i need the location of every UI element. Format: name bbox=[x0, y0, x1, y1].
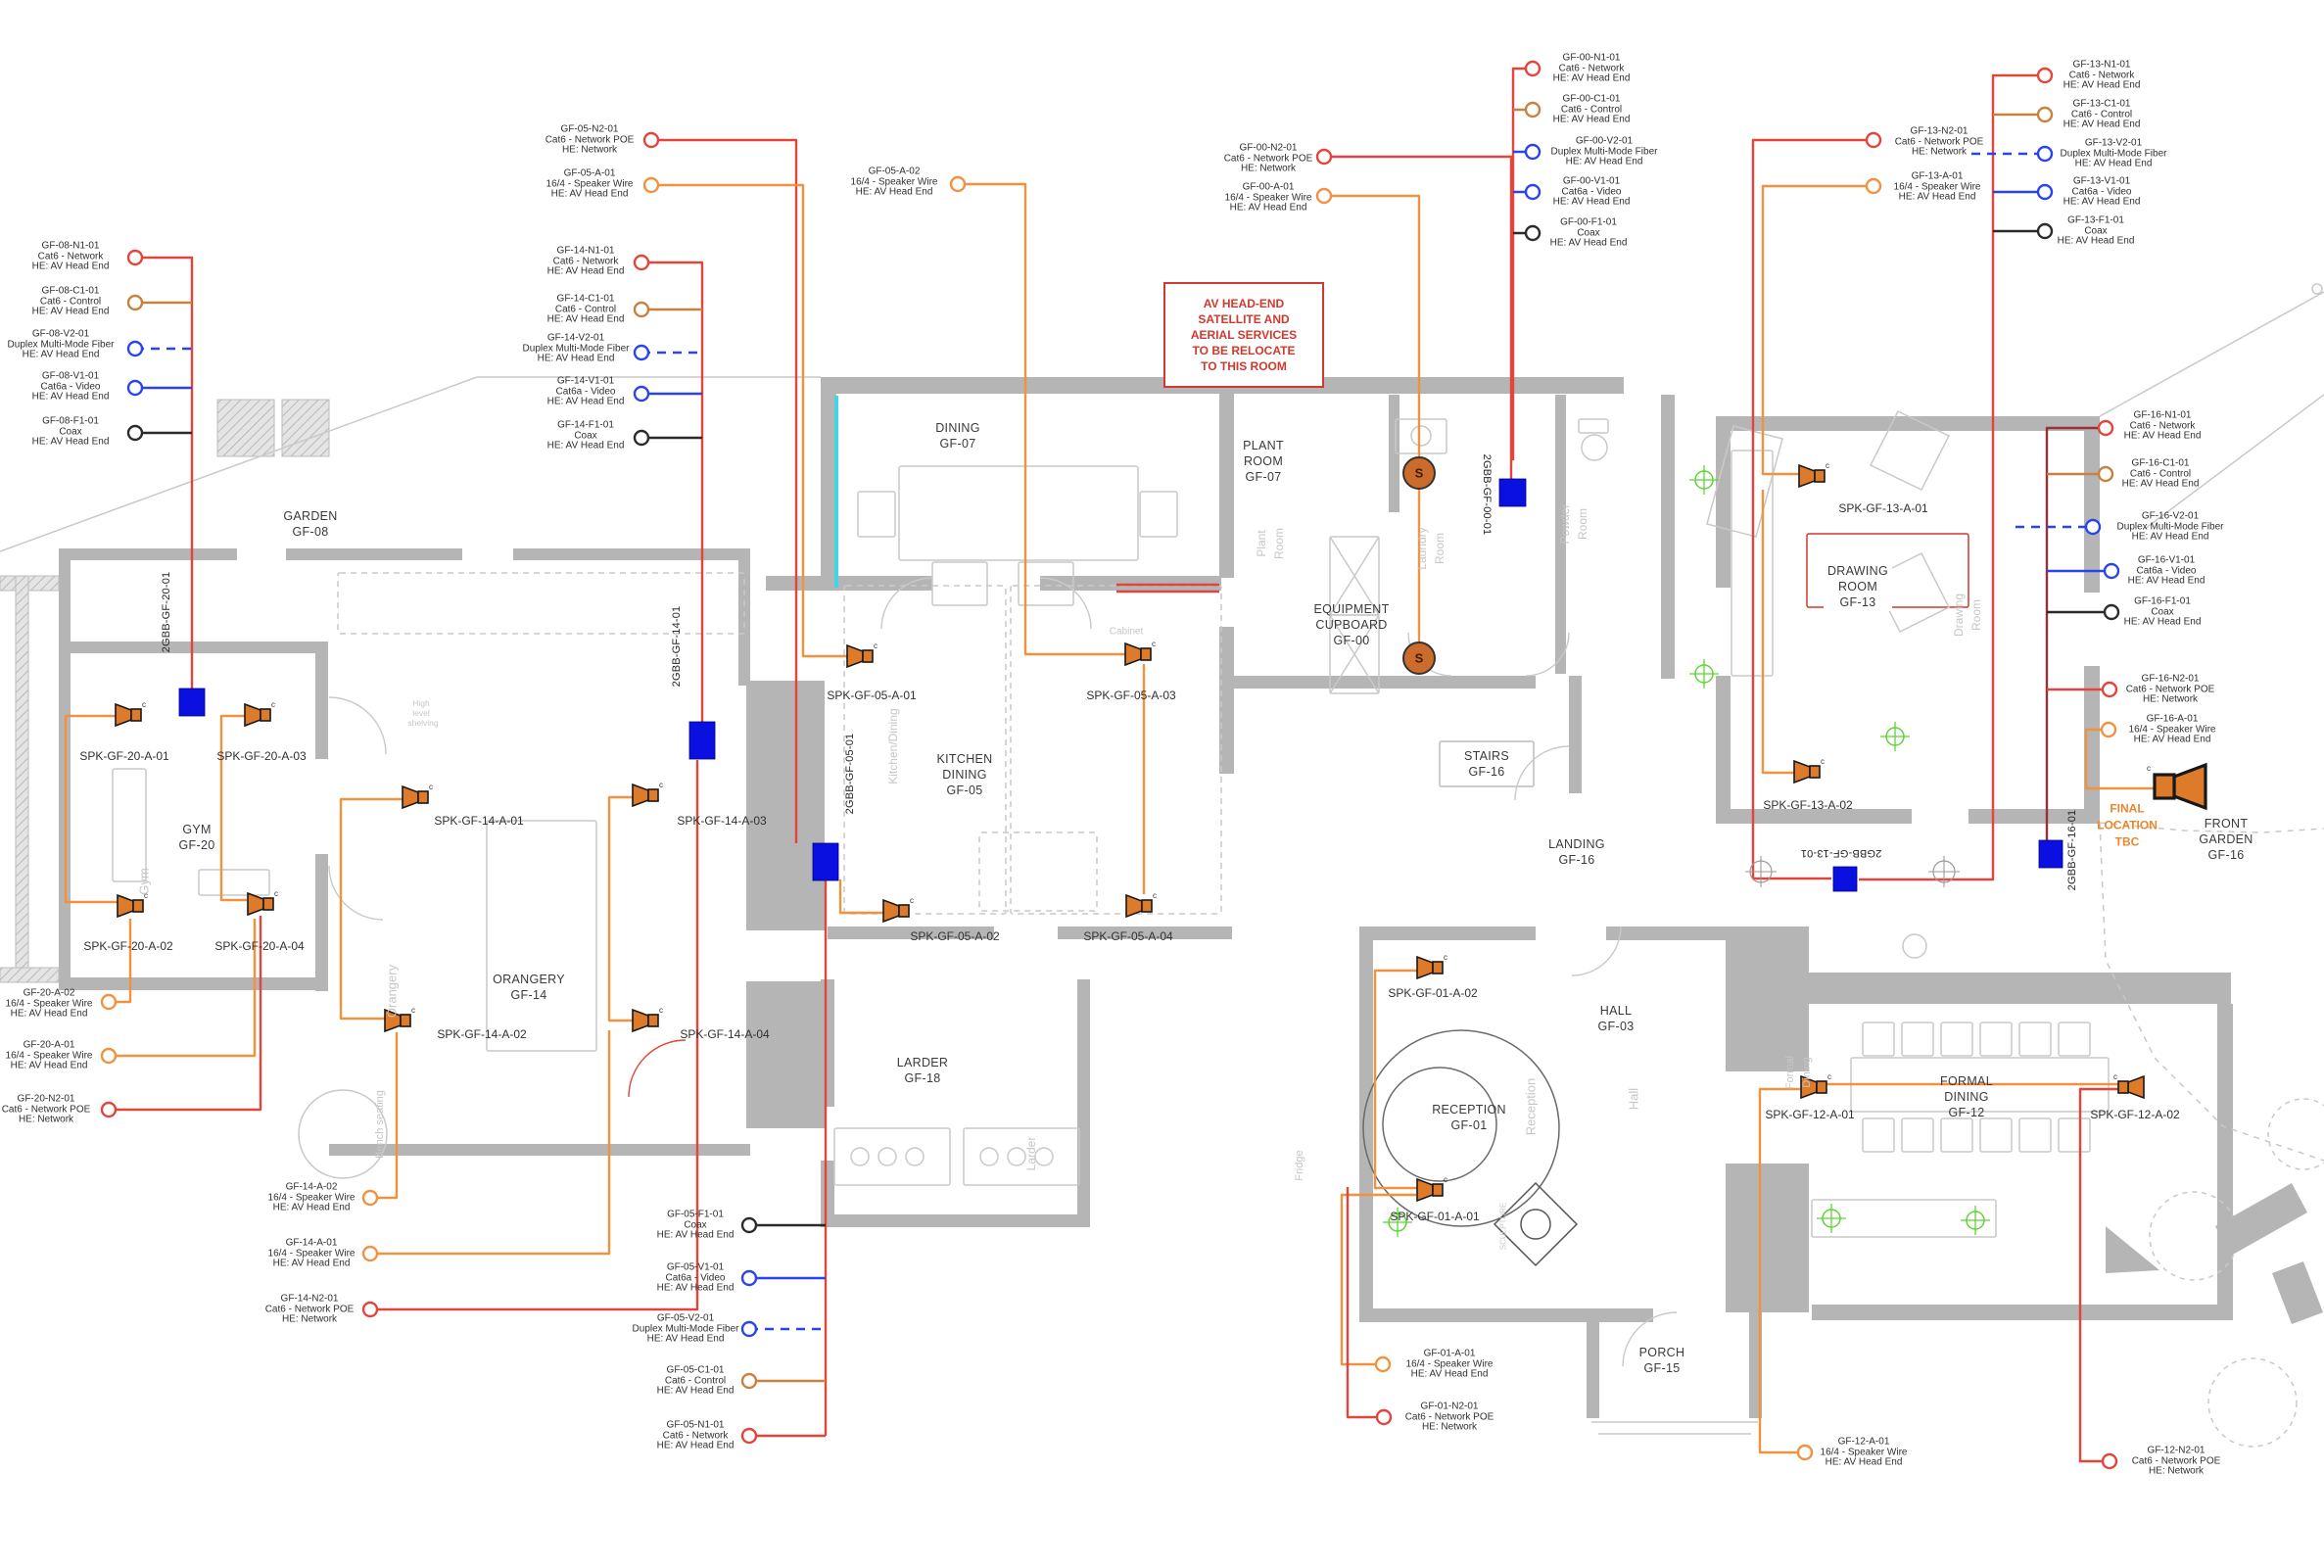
speaker-ceiling-mark: c bbox=[144, 891, 148, 900]
speaker-ceiling-mark: c bbox=[1152, 640, 1156, 648]
furniture-polygon bbox=[1873, 553, 1949, 632]
furniture-outline bbox=[487, 821, 596, 1051]
cable-terminal-dot bbox=[2105, 605, 2118, 619]
furniture-polygon bbox=[1494, 1183, 1577, 1265]
cable-terminal-dot bbox=[742, 1429, 756, 1443]
keypad-2GBB-GF-00-01 bbox=[1499, 479, 1526, 506]
furniture-circle bbox=[1383, 1068, 1496, 1181]
cable-terminal-dot bbox=[102, 995, 116, 1009]
speaker-ceiling-mark: c bbox=[1821, 757, 1825, 766]
cable-route-red bbox=[1324, 157, 1511, 479]
cable-terminal-dot bbox=[635, 256, 648, 269]
furniture-outline bbox=[113, 769, 146, 881]
speaker-cone bbox=[2174, 765, 2205, 808]
wall-segment bbox=[1716, 416, 2100, 431]
wall-segment bbox=[1716, 676, 1731, 813]
cable-terminal-dot bbox=[951, 177, 965, 191]
speaker-cone bbox=[245, 704, 261, 726]
wall-segment bbox=[821, 1214, 1090, 1227]
wall-segment bbox=[1359, 927, 1536, 940]
furniture-polygon bbox=[2272, 1261, 2323, 1324]
speaker-icon-SPK-GF-01-A-01 bbox=[1417, 1179, 1443, 1201]
speaker-driver bbox=[648, 789, 658, 801]
wall-segment bbox=[1058, 927, 1232, 939]
cable-terminal-dot bbox=[644, 178, 658, 192]
cable-terminal-dot bbox=[2099, 421, 2112, 435]
speaker-cone bbox=[1417, 1179, 1433, 1201]
s-node-letter: S bbox=[1415, 466, 1424, 481]
keypad-2GBB-GF-16-01 bbox=[2039, 840, 2063, 868]
cable-terminal-dot bbox=[2038, 147, 2052, 161]
cable-terminal-dot bbox=[2099, 467, 2112, 481]
cable-terminal-dot bbox=[1867, 133, 1880, 147]
boundary-line bbox=[2100, 292, 2324, 416]
furniture-outline bbox=[858, 492, 895, 537]
speaker-icon-SPK-GF-20-A-03 bbox=[245, 704, 270, 726]
cable-route-spk bbox=[609, 797, 635, 1021]
furniture-outline bbox=[1863, 1118, 1894, 1152]
speaker-ceiling-mark: c bbox=[1153, 891, 1157, 900]
cable-terminal-dot bbox=[1526, 226, 1540, 240]
speaker-ceiling-mark: c bbox=[659, 781, 663, 789]
speaker-ceiling-mark: c bbox=[1444, 1175, 1447, 1184]
s-node-letter: S bbox=[1415, 651, 1424, 666]
wall-segment bbox=[828, 927, 994, 939]
wall-segment bbox=[1716, 431, 1731, 588]
speaker-ceiling-mark: c bbox=[910, 896, 914, 905]
wall-segment bbox=[2084, 416, 2100, 593]
speaker-driver bbox=[2118, 1081, 2128, 1093]
cable-route-spk bbox=[221, 716, 247, 900]
hatched-wall-segment bbox=[282, 400, 329, 456]
speaker-driver bbox=[1433, 1184, 1443, 1196]
cable-route-spk bbox=[1763, 490, 1795, 773]
cable-terminal-dot bbox=[128, 426, 142, 440]
wall-segment bbox=[1359, 927, 1373, 1322]
keypad-2GBB-GF-14-01 bbox=[689, 722, 715, 759]
speaker-icon-SPK-GF-05-A-03 bbox=[1125, 643, 1151, 665]
speaker-driver bbox=[263, 898, 273, 910]
cable-terminal-dot bbox=[1526, 103, 1540, 117]
furniture-outline bbox=[2059, 1118, 2090, 1152]
furniture-circle bbox=[1411, 426, 1431, 446]
furniture-outline bbox=[899, 466, 1138, 560]
furniture-circle bbox=[299, 1090, 387, 1178]
furniture-circle bbox=[851, 1148, 869, 1165]
cable-terminal-dot bbox=[128, 381, 142, 395]
speaker-cone bbox=[385, 1010, 401, 1031]
wall-segment bbox=[59, 548, 237, 560]
wall-segment bbox=[1587, 1312, 1599, 1418]
furniture-outline bbox=[1980, 1118, 2012, 1152]
wall-segment bbox=[1077, 979, 1090, 1224]
cable-terminal-dot bbox=[2038, 108, 2052, 121]
speaker-cone bbox=[1794, 761, 1810, 783]
keypad-2GBB-GF-05-01 bbox=[813, 843, 838, 880]
cable-terminal-dot bbox=[644, 133, 658, 147]
furniture-outline bbox=[2059, 1022, 2090, 1056]
cable-routes-layer bbox=[66, 69, 2157, 1461]
speaker-driver bbox=[418, 791, 428, 803]
cable-terminal-dot bbox=[635, 387, 648, 401]
boundary-line bbox=[0, 377, 821, 551]
hatched-wall-segment bbox=[16, 576, 28, 980]
cable-terminal-dot bbox=[1526, 185, 1540, 199]
speaker-driver bbox=[133, 900, 143, 912]
furniture-linework-layer bbox=[0, 284, 2324, 1447]
speaker-driver bbox=[131, 709, 141, 721]
cable-terminal-dot bbox=[742, 1218, 756, 1232]
cable-terminal-dot bbox=[635, 303, 648, 316]
speaker-icon-front-garden-speaker bbox=[2155, 765, 2205, 808]
speaker-icon-SPK-GF-14-A-04 bbox=[633, 1010, 658, 1031]
speaker-cone bbox=[847, 645, 863, 667]
speaker-icon-SPK-GF-12-A-02 bbox=[2118, 1076, 2144, 1098]
speaker-cone bbox=[248, 893, 263, 915]
furniture-outline bbox=[1980, 1022, 2012, 1056]
wall-segment bbox=[1812, 1305, 2233, 1320]
cable-route-spk bbox=[66, 716, 118, 902]
wall-segment bbox=[1232, 676, 1536, 689]
boundary-line bbox=[2100, 823, 2324, 832]
wall-segment bbox=[1753, 973, 2231, 1004]
furniture-circle bbox=[1903, 934, 1926, 958]
speaker-ceiling-mark: c bbox=[429, 783, 433, 791]
furniture-circle bbox=[2312, 284, 2322, 294]
furniture-circle bbox=[1008, 1148, 1025, 1165]
speaker-ceiling-mark: c bbox=[2147, 764, 2151, 773]
speaker-icon-SPK-GF-14-A-02 bbox=[385, 1010, 410, 1031]
speaker-cone bbox=[1125, 643, 1141, 665]
speaker-icon-SPK-GF-01-A-02 bbox=[1417, 957, 1443, 978]
speaker-driver bbox=[1433, 962, 1443, 974]
floor-plan-canvas: cccccccccccccccccccSS AV HEAD-END SATELL… bbox=[0, 0, 2324, 1568]
cable-terminal-dot bbox=[742, 1374, 756, 1388]
cable-terminal-dot bbox=[2102, 723, 2115, 736]
speaker-icon-SPK-GF-14-A-03 bbox=[633, 784, 658, 806]
cable-route-red bbox=[109, 916, 261, 1110]
speaker-driver bbox=[648, 1015, 658, 1026]
cable-terminal-dot bbox=[2038, 224, 2052, 238]
speaker-cone bbox=[633, 784, 648, 806]
wall-segment bbox=[1569, 676, 1582, 793]
wall-segment bbox=[1968, 809, 2100, 824]
cable-route-spk bbox=[370, 1032, 397, 1198]
symbols-layer: cccccccccccccccccccSS bbox=[102, 62, 2205, 1468]
furniture-outline bbox=[1396, 419, 1447, 453]
speaker-icon-SPK-GF-14-A-01 bbox=[403, 786, 428, 808]
speaker-cone bbox=[116, 704, 131, 726]
cable-route-red bbox=[370, 760, 697, 1309]
furniture-outline bbox=[844, 586, 1006, 914]
speaker-cone bbox=[633, 1010, 648, 1031]
cable-terminal-dot bbox=[2105, 564, 2118, 578]
speaker-cone bbox=[1801, 1076, 1817, 1098]
wall-segment bbox=[1726, 1164, 1809, 1312]
wall-segment bbox=[513, 548, 750, 560]
speaker-icon-SPK-GF-05-A-02 bbox=[883, 900, 909, 922]
speaker-driver bbox=[1810, 766, 1820, 778]
speaker-driver bbox=[1815, 470, 1825, 482]
cable-terminal-dot bbox=[1526, 145, 1540, 159]
keypad-2GBB-GF-13-01 bbox=[1833, 867, 1857, 891]
cable-terminal-dot bbox=[635, 431, 648, 445]
speaker-driver bbox=[1817, 1081, 1826, 1093]
cable-terminal-dot bbox=[128, 251, 142, 264]
furniture-circle bbox=[878, 1148, 896, 1165]
wall-segment bbox=[1661, 395, 1675, 679]
speaker-ceiling-mark: c bbox=[274, 889, 278, 898]
boundary-line bbox=[2145, 395, 2324, 529]
wall-segment bbox=[821, 394, 836, 590]
furniture-outline bbox=[1902, 1022, 1933, 1056]
cable-route-red bbox=[135, 258, 192, 689]
furniture-circle bbox=[906, 1148, 924, 1165]
cable-terminal-dot bbox=[363, 1247, 377, 1260]
cable-route-spk bbox=[1324, 196, 1419, 456]
speaker-icon-SPK-GF-20-A-02 bbox=[118, 895, 143, 917]
cable-terminal-dot bbox=[1798, 1446, 1812, 1459]
cable-route-spk bbox=[1375, 971, 1418, 1188]
cable-route-red bbox=[641, 262, 702, 722]
speaker-cone bbox=[1799, 465, 1815, 487]
wall-segment bbox=[315, 854, 328, 991]
cable-terminal-dot bbox=[102, 1049, 116, 1063]
furniture-circle bbox=[980, 1148, 998, 1165]
speaker-icon-SPK-GF-12-A-01 bbox=[1801, 1076, 1826, 1098]
cable-terminal-dot bbox=[1526, 62, 1540, 75]
wall-segment bbox=[59, 977, 325, 990]
cable-terminal-dot bbox=[1867, 179, 1880, 193]
cable-terminal-dot bbox=[1317, 150, 1331, 164]
speaker-driver bbox=[1141, 648, 1151, 660]
speaker-icon-SPK-GF-13-A-02 bbox=[1794, 761, 1820, 783]
speaker-ceiling-mark: c bbox=[142, 700, 146, 709]
cable-terminal-dot bbox=[1317, 189, 1331, 203]
wall-segment bbox=[1040, 576, 1221, 591]
speaker-ceiling-mark: c bbox=[1444, 953, 1447, 962]
wall-segment bbox=[1716, 809, 1912, 824]
speaker-cone bbox=[118, 895, 133, 917]
furniture-polygon bbox=[2106, 1226, 2159, 1273]
wall-segment bbox=[286, 548, 462, 560]
cable-terminal-dot bbox=[2086, 520, 2100, 534]
hatched-wall-segment bbox=[0, 576, 59, 591]
furniture-circle bbox=[2268, 1099, 2324, 1169]
cable-route-red bbox=[2080, 1089, 2118, 1461]
keypad-2GBB-GF-20-01 bbox=[179, 689, 205, 716]
cable-terminal-dot bbox=[742, 1322, 756, 1336]
speaker-icon-SPK-GF-13-A-01 bbox=[1799, 465, 1825, 487]
speaker-cone bbox=[403, 786, 418, 808]
furniture-circle bbox=[1582, 435, 1607, 460]
speaker-ceiling-mark: c bbox=[874, 641, 877, 650]
wall-segment bbox=[746, 681, 825, 930]
speaker-driver bbox=[899, 905, 909, 917]
speaker-ceiling-mark: c bbox=[659, 1006, 663, 1015]
cable-terminal-dot bbox=[635, 346, 648, 359]
wall-segment bbox=[315, 641, 328, 759]
cable-terminal-dot bbox=[1376, 1357, 1390, 1371]
speaker-driver bbox=[401, 1015, 410, 1026]
speaker-driver bbox=[261, 709, 270, 721]
furniture-outline bbox=[1941, 1022, 1972, 1056]
wall-segment bbox=[1219, 377, 1234, 578]
speaker-driver bbox=[1142, 900, 1152, 912]
furniture-circle bbox=[1521, 1210, 1550, 1239]
furniture-outline bbox=[1011, 586, 1221, 914]
cable-terminal-dot bbox=[2038, 185, 2052, 199]
furniture-outline bbox=[1902, 1118, 1933, 1152]
cable-route-red bbox=[1859, 75, 2045, 879]
furniture-outline bbox=[932, 562, 987, 605]
speaker-ceiling-mark: c bbox=[2113, 1072, 2117, 1081]
furniture-outline bbox=[199, 870, 269, 895]
speaker-icon-SPK-GF-05-A-01 bbox=[847, 645, 873, 667]
furniture-outline bbox=[1140, 492, 1177, 537]
wall-segment bbox=[821, 1161, 834, 1221]
cable-terminal-dot bbox=[363, 1191, 377, 1205]
cable-terminal-dot bbox=[2103, 683, 2116, 696]
speaker-cone bbox=[883, 900, 899, 922]
speaker-driver bbox=[863, 650, 873, 662]
hatched-wall-segment bbox=[217, 400, 274, 456]
cable-terminal-dot bbox=[363, 1303, 377, 1316]
furniture-outline bbox=[979, 832, 1097, 911]
speaker-icon-SPK-GF-20-A-04 bbox=[248, 893, 273, 915]
wall-segment bbox=[1555, 395, 1566, 674]
cable-terminal-dot bbox=[2038, 69, 2052, 82]
door-swing-arc bbox=[1515, 746, 1569, 800]
speaker-ceiling-mark: c bbox=[1826, 461, 1829, 470]
hatched-wall-segment bbox=[0, 968, 59, 982]
cable-route-red bbox=[1513, 69, 1533, 460]
cable-terminal-dot bbox=[128, 296, 142, 309]
speaker-cone bbox=[1417, 957, 1433, 978]
cable-terminal-dot bbox=[2103, 1454, 2116, 1468]
door-swing-arc bbox=[329, 697, 386, 754]
wall-segment bbox=[1359, 1308, 1653, 1322]
cable-route-spk bbox=[840, 879, 884, 913]
cable-terminal-dot bbox=[102, 1103, 116, 1117]
wall-segment bbox=[746, 981, 825, 1128]
furniture-outline bbox=[1579, 419, 1608, 433]
speaker-icon-SPK-GF-20-A-01 bbox=[116, 704, 141, 726]
furniture-circle bbox=[2208, 1358, 2297, 1447]
cable-route-spk bbox=[370, 1030, 609, 1254]
furniture-circle bbox=[1363, 1030, 1559, 1226]
speaker-ceiling-mark: c bbox=[271, 700, 275, 709]
wall-segment bbox=[329, 1144, 750, 1156]
wall-segment bbox=[1606, 927, 1733, 940]
furniture-outline bbox=[1863, 1022, 1894, 1056]
speaker-ceiling-mark: c bbox=[1827, 1072, 1831, 1081]
furniture-circle bbox=[1035, 1148, 1053, 1165]
cable-route-spk bbox=[1342, 1195, 1416, 1364]
furniture-outline bbox=[1941, 1118, 1972, 1152]
door-swing-arc bbox=[329, 866, 383, 920]
speaker-driver bbox=[2155, 775, 2174, 798]
furniture-outline bbox=[2019, 1022, 2051, 1056]
furniture-outline bbox=[2019, 1118, 2051, 1152]
door-swing-arc-red bbox=[629, 1040, 686, 1097]
plan-drawing: cccccccccccccccccccSS bbox=[0, 0, 2324, 1568]
furniture-outline bbox=[338, 573, 744, 634]
cable-terminal-dot bbox=[742, 1271, 756, 1285]
wall-segment bbox=[766, 576, 932, 591]
speaker-cone bbox=[2128, 1076, 2144, 1098]
cable-terminal-dot bbox=[1377, 1410, 1391, 1424]
cable-terminal-dot bbox=[128, 342, 142, 356]
speaker-ceiling-mark: c bbox=[411, 1006, 415, 1015]
